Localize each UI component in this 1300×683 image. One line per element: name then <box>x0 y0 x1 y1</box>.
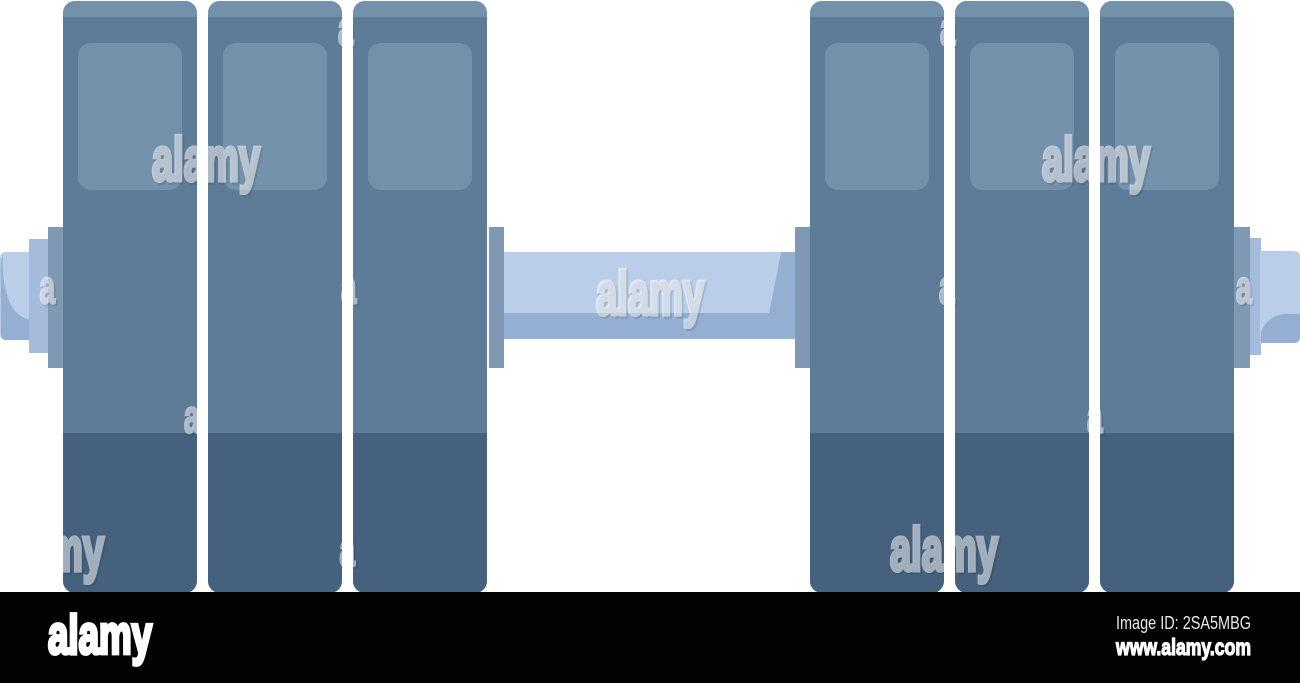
svg-text:a: a <box>1236 261 1252 313</box>
svg-text:alamy: alamy <box>596 260 704 328</box>
svg-text:Image ID: 2SA5MBG: Image ID: 2SA5MBG <box>1116 613 1251 633</box>
svg-text:alamy: alamy <box>48 604 152 666</box>
svg-text:a: a <box>40 261 56 313</box>
svg-text:www.alamy.com: www.alamy.com <box>1115 634 1251 660</box>
